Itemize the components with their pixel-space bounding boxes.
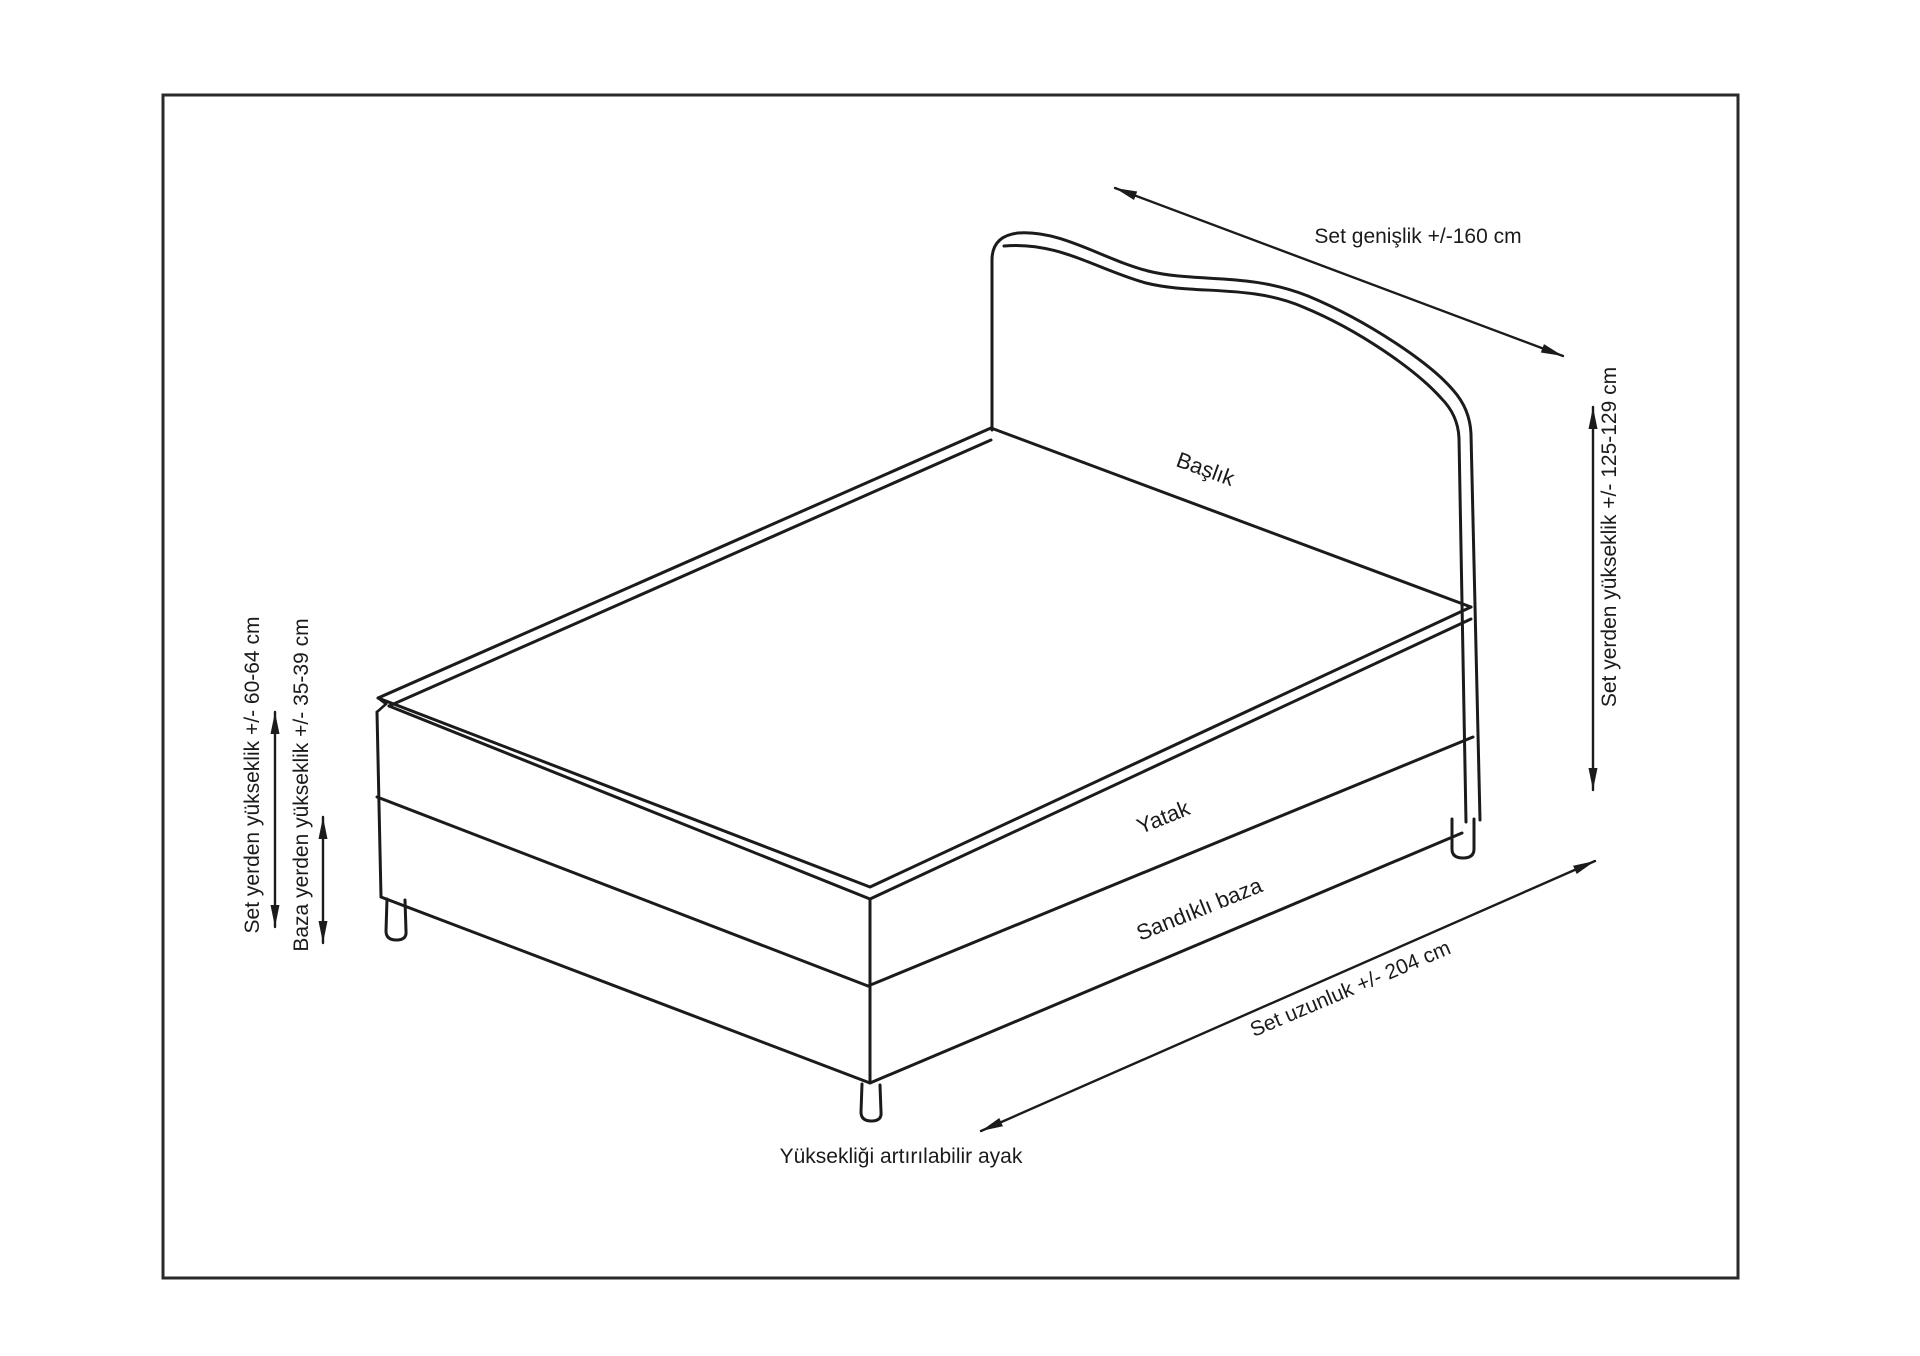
base-height-arrowhead-top <box>319 817 328 839</box>
mattress-top-headboard-edge <box>991 428 1471 607</box>
set-height-left-arrowhead-top <box>271 712 280 734</box>
set-height-left-dimension-label: Set yerden yükseklik +/- 60-64 cm <box>241 617 264 934</box>
headboard-label: Başlık <box>1173 447 1239 491</box>
width-dimension-arrow <box>1115 188 1563 356</box>
length-arrowhead-left <box>981 1118 1003 1131</box>
set-width-dimension-label: Set genişlik +/-160 cm <box>1314 225 1521 248</box>
set-height-right-arrowhead-top <box>1589 407 1598 429</box>
set-height-right-arrowhead-bottom <box>1589 768 1598 790</box>
foot-face-left-edge <box>377 712 381 897</box>
adjustable-leg-label: Yüksekliği artırılabilir ayak <box>780 1145 1023 1168</box>
diagram-page: Set genişlik +/-160 cm Set yerden yüksek… <box>0 0 1920 1356</box>
right-leg <box>1452 819 1474 858</box>
mattress-label: Yatak <box>1133 795 1194 839</box>
mattress-top-near-piping <box>389 619 1471 899</box>
set-height-left-dimension-arrow <box>271 712 280 927</box>
border-frame <box>163 95 1738 1278</box>
set-length-dimension-label: Set uzunluk +/- 204 cm <box>1247 936 1454 1041</box>
headboard-outer-outline <box>992 233 1480 820</box>
set-height-left-arrowhead-bottom <box>271 905 280 927</box>
headboard-inner-outline <box>1004 245 1466 822</box>
length-arrowhead-right <box>1573 861 1595 874</box>
mattress-top-near-edge <box>378 607 1471 887</box>
mattress-top-rear-edge <box>378 428 991 698</box>
width-arrowhead-left <box>1115 188 1137 200</box>
front-leg <box>861 1084 881 1121</box>
base-height-arrowhead-bottom <box>319 921 328 943</box>
width-dimension-line <box>1115 188 1563 356</box>
foot-face-bottom-edge <box>381 897 870 1083</box>
front-face-seam <box>868 737 1473 986</box>
set-height-right-dimension-label: Set yerden yükseklik +/- 125-129 cm <box>1598 367 1621 707</box>
base-height-dimension-arrow <box>319 817 328 943</box>
bed-dimension-diagram: Set genişlik +/-160 cm Set yerden yüksek… <box>0 0 1920 1356</box>
width-arrowhead-right <box>1541 344 1563 356</box>
mattress-top-rear-piping <box>389 440 991 706</box>
storage-base-label: Sandıklı baza <box>1133 872 1267 945</box>
bed-drawing <box>377 233 1480 1121</box>
set-height-right-dimension-arrow <box>1589 407 1598 790</box>
foot-face-seam <box>377 797 868 986</box>
base-height-dimension-label: Baza yerden yükseklik +/- 35-39 cm <box>290 618 313 951</box>
